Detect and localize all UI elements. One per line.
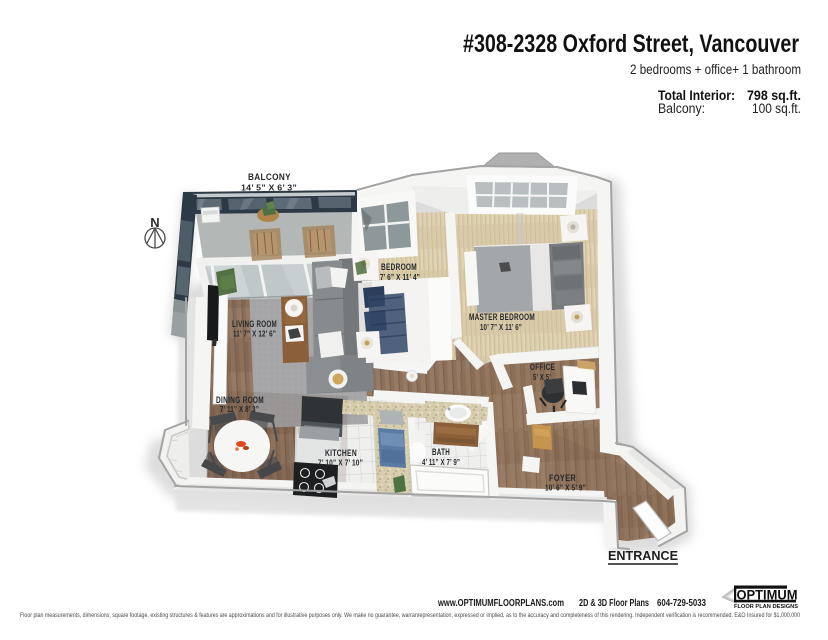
- svg-text:2 bedrooms + office+ 1 bathroo: 2 bedrooms + office+ 1 bathroom: [630, 62, 801, 77]
- svg-text:ENTRANCE: ENTRANCE: [608, 548, 678, 563]
- svg-text:100 sq.ft.: 100 sq.ft.: [752, 101, 801, 116]
- svg-text:MASTER BEDROOM: MASTER BEDROOM: [469, 312, 535, 322]
- svg-text:#308-2328 Oxford Street, Vanco: #308-2328 Oxford Street, Vancouver: [463, 30, 799, 58]
- svg-text:10’ 6” X 5’ 9”: 10’ 6” X 5’ 9”: [545, 483, 586, 493]
- svg-text:10’ 7” X 11’ 6”: 10’ 7” X 11’ 6”: [480, 322, 522, 332]
- svg-text:7’ 10” X 7’ 10”: 7’ 10” X 7’ 10”: [318, 458, 363, 468]
- svg-text:OFFICE: OFFICE: [530, 362, 555, 372]
- svg-text:N: N: [150, 215, 159, 230]
- svg-text:2D & 3D Floor Plans: 2D & 3D Floor Plans: [579, 598, 649, 609]
- svg-text:LIVING ROOM: LIVING ROOM: [232, 319, 277, 329]
- svg-text:BATH: BATH: [432, 447, 450, 457]
- svg-text:7’ 6” X 11’ 4”: 7’ 6” X 11’ 4”: [380, 272, 420, 282]
- svg-text:FOYER: FOYER: [549, 473, 576, 483]
- svg-text:14’ 5” X 6’ 3”: 14’ 5” X 6’ 3”: [241, 183, 297, 193]
- svg-text:BEDROOM: BEDROOM: [381, 262, 417, 272]
- svg-text:5’ X 5’: 5’ X 5’: [533, 372, 551, 382]
- svg-text:7’ 11” X 8’ 3”: 7’ 11” X 8’ 3”: [220, 404, 259, 414]
- svg-text:Balcony:: Balcony:: [658, 101, 705, 116]
- svg-text:BALCONY: BALCONY: [248, 172, 291, 182]
- svg-text:www.OPTIMUMFLOORPLANS.com: www.OPTIMUMFLOORPLANS.com: [437, 598, 564, 609]
- svg-text:4’ 11” X 7’ 9”: 4’ 11” X 7’ 9”: [422, 457, 460, 467]
- svg-text:Floor plan measurements, dimen: Floor plan measurements, dimensions, squ…: [20, 613, 801, 619]
- svg-text:11’ 7” X 12’ 6”: 11’ 7” X 12’ 6”: [233, 329, 276, 339]
- svg-text:OPTIMUM: OPTIMUM: [737, 588, 798, 603]
- svg-text:FLOOR PLAN DESIGNS: FLOOR PLAN DESIGNS: [734, 604, 798, 610]
- svg-text:KITCHEN: KITCHEN: [325, 448, 357, 458]
- svg-text:604-729-5033: 604-729-5033: [657, 598, 706, 609]
